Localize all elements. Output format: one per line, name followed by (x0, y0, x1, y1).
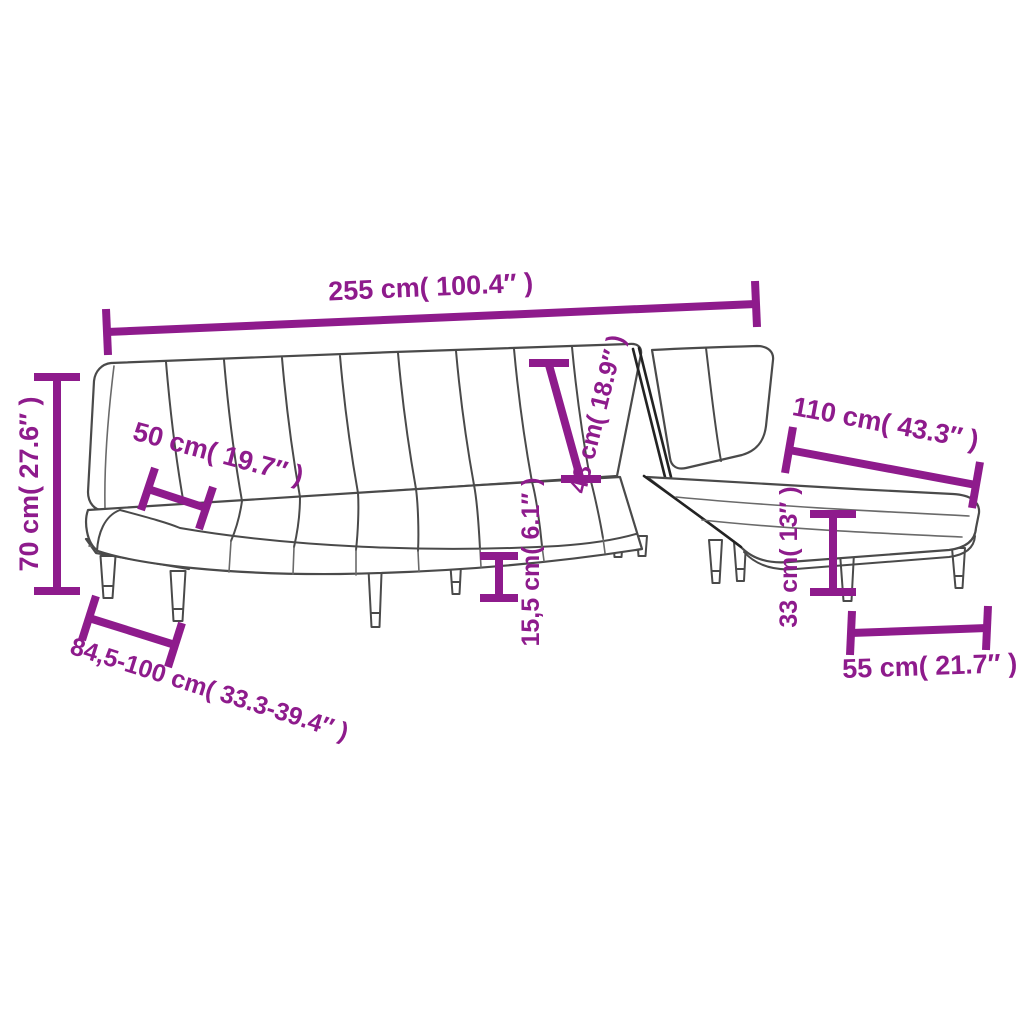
dimension-cap (785, 427, 793, 473)
dimension-overall-width: 255 cm( 100.4″ ) (106, 268, 757, 355)
seat-front-seam (418, 551, 419, 572)
dimension-overall-height: 70 cm( 27.6″ ) (14, 377, 80, 591)
dimension-cap (755, 281, 757, 327)
dimension-line (789, 450, 976, 485)
dimension-depth-range-label: 84,5-100 cm( 33.3-39.4″ ) (67, 632, 352, 746)
product-dimension-diagram: 255 cm( 100.4″ ) 70 cm( 27.6″ ) 50 cm( 1… (0, 0, 1024, 1024)
dimension-chaise-length-label: 110 cm( 43.3″ ) (790, 391, 981, 455)
dimension-cap (972, 462, 980, 508)
sofa-leg (709, 540, 722, 583)
dimension-cap (850, 611, 852, 655)
seat-front-seam (293, 547, 294, 574)
dimension-cap (106, 309, 108, 355)
chaise-seat (647, 477, 979, 562)
dimension-seat-height-label: 15,5 cm( 6.1″ ) (517, 477, 545, 646)
sofa-leg (171, 571, 186, 621)
diagram-canvas: 255 cm( 100.4″ ) 70 cm( 27.6″ ) 50 cm( 1… (0, 0, 1024, 1024)
dimension-line (107, 304, 756, 332)
sofa-leg (101, 556, 116, 598)
dimension-chaise-width: 55 cm( 21.7″ ) (842, 606, 1018, 684)
dimension-cap (986, 606, 988, 650)
dimension-line (851, 628, 987, 633)
dimension-chaise-width-label: 55 cm( 21.7″ ) (842, 648, 1018, 684)
dimension-overall-width-label: 255 cm( 100.4″ ) (328, 268, 534, 307)
dimension-chaise-seat-height-label: 33 cm( 13″ ) (775, 486, 803, 627)
dimension-overall-height-label: 70 cm( 27.6″ ) (14, 396, 44, 571)
dimension-depth-range: 84,5-100 cm( 33.3-39.4″ ) (67, 596, 352, 746)
